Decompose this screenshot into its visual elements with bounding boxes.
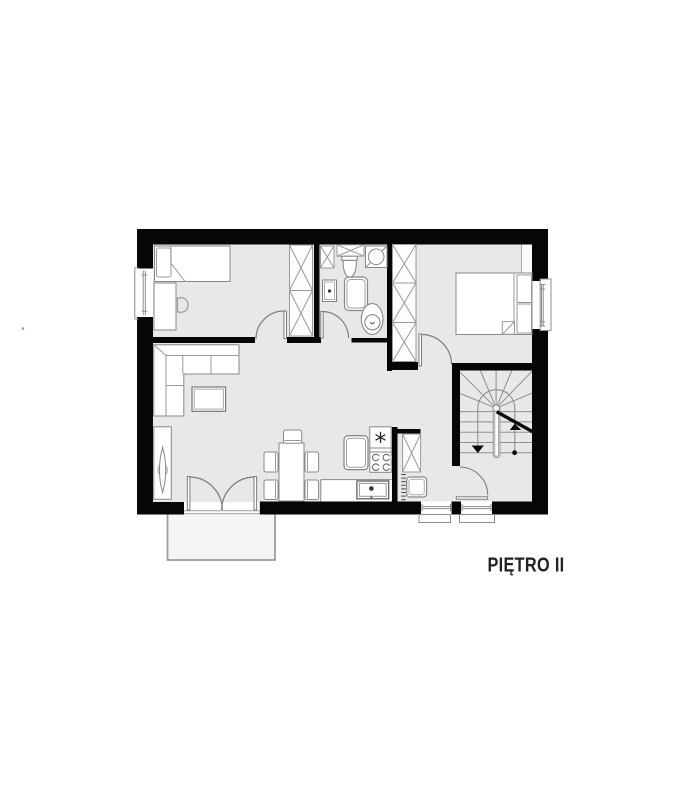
svg-text:PIĘTRO II: PIĘTRO II xyxy=(488,554,565,577)
